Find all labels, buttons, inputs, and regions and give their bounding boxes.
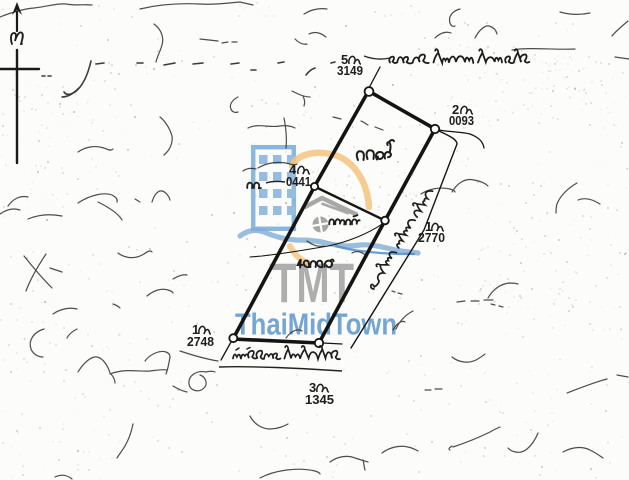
svg-text:2770: 2770 [418, 230, 445, 245]
svg-text:1345: 1345 [305, 392, 334, 407]
svg-text:2748: 2748 [187, 334, 214, 349]
svg-text:0441: 0441 [286, 174, 311, 189]
svg-text:3149: 3149 [337, 63, 363, 78]
svg-text:0093: 0093 [449, 113, 474, 128]
